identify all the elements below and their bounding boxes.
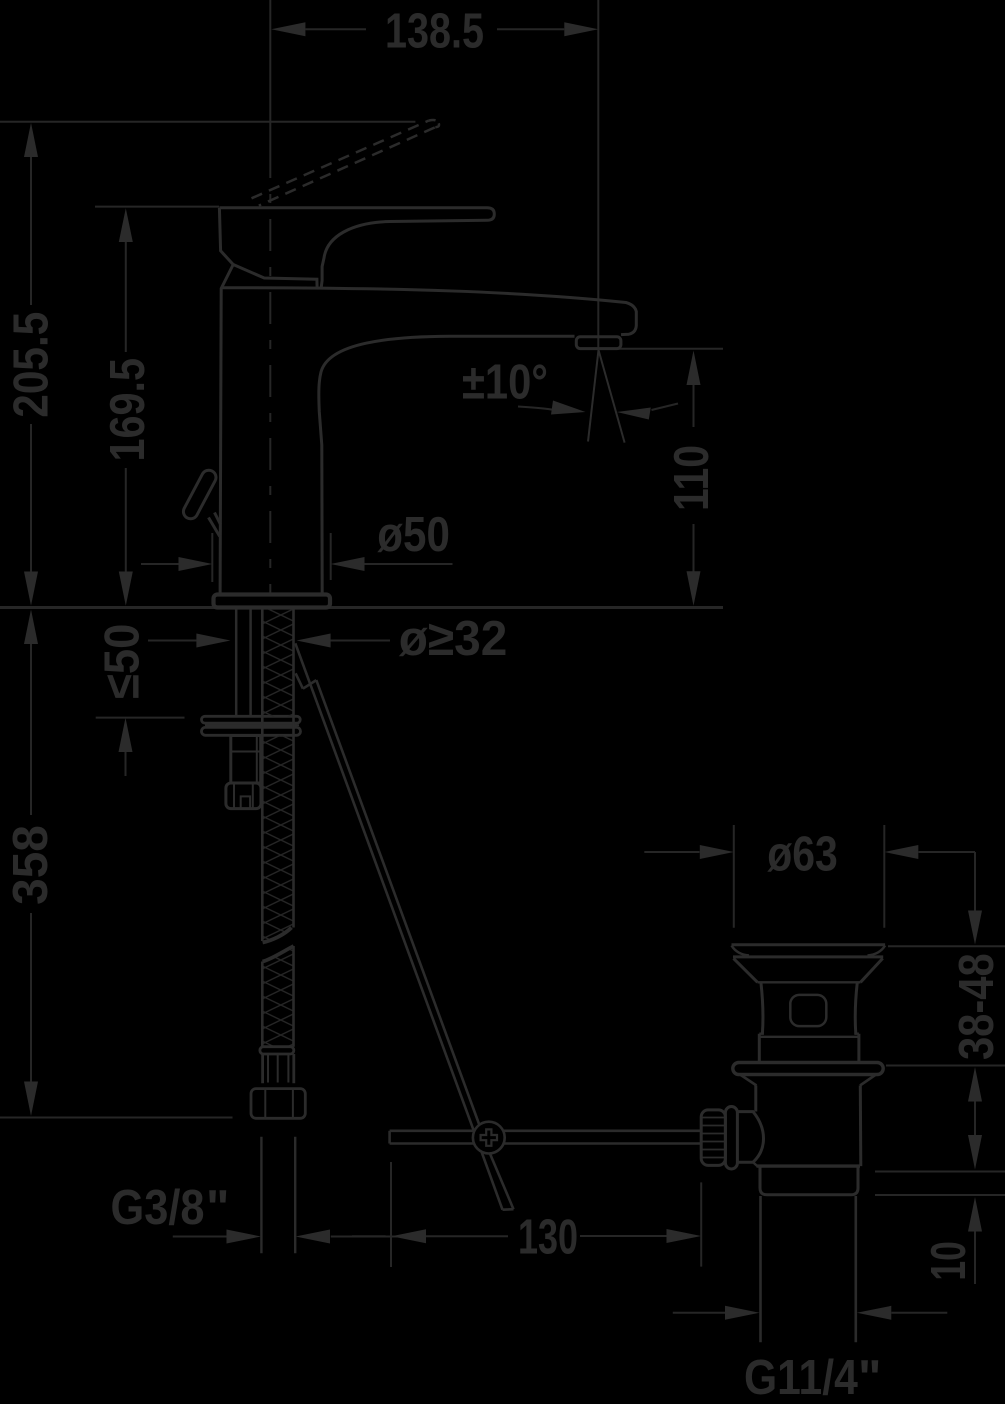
svg-text:ø63: ø63 [767, 827, 838, 882]
svg-text:≤50: ≤50 [94, 624, 149, 699]
svg-text:ø≥32: ø≥32 [399, 611, 508, 666]
svg-text:": " [206, 1180, 229, 1235]
svg-text:358: 358 [3, 825, 58, 905]
svg-text:38-48: 38-48 [949, 953, 1004, 1060]
svg-text:130: 130 [518, 1210, 578, 1265]
svg-text:205.5: 205.5 [4, 312, 59, 418]
svg-text:169.5: 169.5 [100, 358, 155, 462]
svg-text:G3/8: G3/8 [111, 1180, 205, 1235]
svg-text:110: 110 [664, 445, 719, 511]
svg-text:138.5: 138.5 [385, 3, 484, 58]
svg-text:": " [858, 1350, 881, 1404]
svg-text:10: 10 [921, 1241, 976, 1280]
svg-text:±10°: ±10° [462, 355, 548, 410]
svg-text:G11/4: G11/4 [744, 1350, 858, 1404]
svg-text:ø50: ø50 [377, 507, 450, 562]
